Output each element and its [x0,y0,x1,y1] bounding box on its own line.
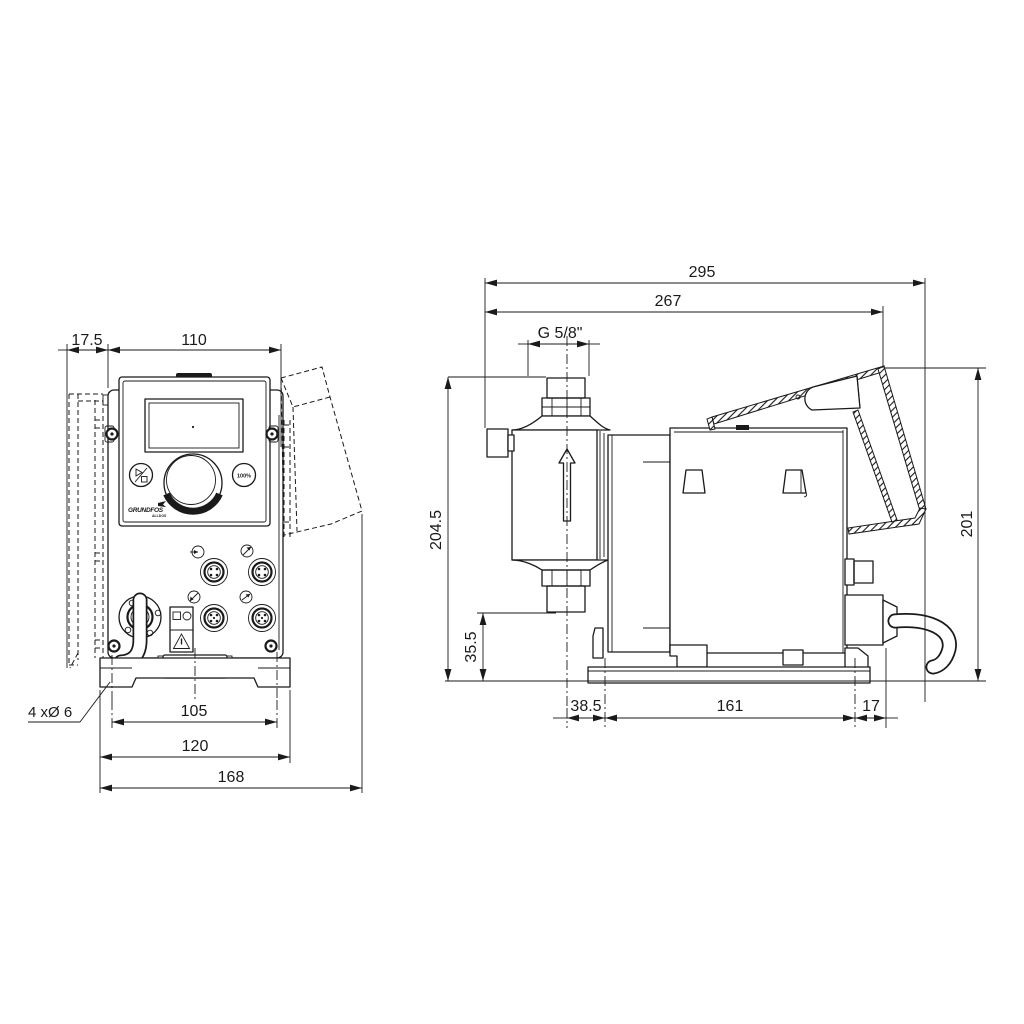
dim-wall-offset: 17.5 [71,332,102,349]
socket-icon[interactable] [201,559,228,586]
control-knob[interactable] [164,454,222,512]
dim-hole-spacing: 105 [181,703,208,720]
dim-overall-length: 295 [689,264,716,281]
dim-body-width: 110 [181,332,207,349]
pump-body-side [588,425,949,683]
socket-icon[interactable] [249,559,276,586]
start-stop-button[interactable] [130,464,153,487]
logo-subtext: ALLDOS [152,514,167,518]
dim-overall-width: 168 [218,769,245,786]
dimensional-drawing: 100% GRUNDFOS ALLDOS [0,0,1024,1024]
control-panel: 100% GRUNDFOS ALLDOS [119,373,270,526]
display-dot [192,426,194,428]
head-top-shoulder [512,416,610,430]
max-button-label: 100% [237,474,251,480]
dim-plate-width: 120 [182,738,209,755]
max-capacity-button[interactable]: 100% [233,464,256,487]
hood-inner-wall [853,410,897,522]
deaeration-knob[interactable] [487,429,508,457]
rear-stub [845,559,873,585]
top-tab-side [736,425,749,430]
wall-plate-hidden-outline [69,394,103,668]
front-view: 100% GRUNDFOS ALLDOS [28,332,362,793]
hood-bottom-edge [848,508,926,534]
drawing-page: 100% GRUNDFOS ALLDOS [0,0,1024,1024]
inlet-nut [542,570,590,586]
inlet-thread [547,586,585,612]
holes-note: 4 xØ 6 [28,704,72,721]
outlet-nut [542,398,590,416]
dim-rear-offset: 17 [862,698,880,715]
socket-icon[interactable] [249,605,276,632]
dim-hood-height: 201 [959,511,976,538]
side-view: 295 267 G 5/8" 204.5 35.5 201 [428,264,986,728]
dim-thread: G 5/8" [538,325,583,342]
dim-base-length: 161 [717,698,744,715]
dim-fitting-height: 35.5 [463,631,480,662]
socket-icon[interactable] [201,605,228,632]
warning-label [170,607,193,652]
dosing-head [487,336,610,708]
dim-hood-length: 267 [655,293,682,310]
logo-text: GRUNDFOS [128,507,164,514]
outlet-thread [547,378,585,398]
dim-height-total: 204.5 [428,510,445,550]
head-bottom-shoulder [512,560,608,570]
hood-hidden-outline [281,367,362,540]
head-body [512,430,597,560]
dim-head-offset: 38.5 [570,698,601,715]
